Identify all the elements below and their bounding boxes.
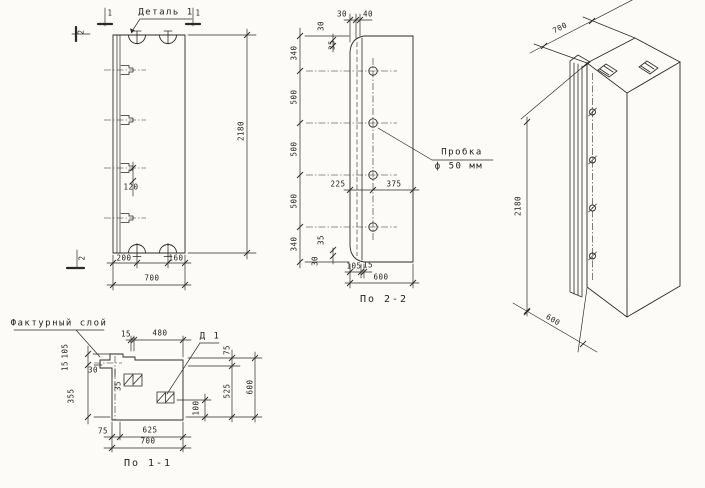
- dim-s22-mid-375: 375: [386, 180, 401, 188]
- dim-s22-rib-bot-30: 30: [311, 256, 319, 266]
- dim-s11-top-15: 15: [121, 330, 131, 338]
- embedded-part-label: Д 1: [200, 333, 221, 342]
- dim-s22-rib-bot-35: 35: [317, 235, 325, 245]
- dim-s11-right-600: 600: [246, 379, 254, 394]
- dim-s22-top-30: 30: [337, 10, 347, 18]
- dim-s11-left-30: 30: [88, 366, 98, 374]
- dim-s11-right-100: 100: [192, 400, 200, 415]
- dim-s11-right-75: 75: [223, 345, 231, 355]
- dim-s22-bot-105: 105: [346, 262, 361, 270]
- dim-s22-chain-500-1: 500: [290, 89, 298, 104]
- section-mark-2-top: 2: [77, 29, 85, 34]
- section-mark-2-bottom: 2: [78, 255, 86, 260]
- dim-front-width-700: 700: [144, 274, 159, 282]
- facture-layer-label: Фактурный слой: [11, 320, 108, 329]
- dim-front-loop-left-200: 200: [116, 254, 131, 262]
- dim-s22-chain-340-top: 340: [290, 45, 298, 60]
- dim-s11-left-355: 355: [67, 388, 75, 403]
- detail-callout-label: Деталь 1: [138, 9, 193, 18]
- linework: [0, 0, 705, 488]
- dim-s11-bot-75: 75: [98, 427, 108, 435]
- dim-front-loop-right-160: 160: [168, 254, 183, 262]
- section-mark-1-right: 1: [195, 9, 200, 17]
- dim-s22-top-40: 40: [363, 10, 373, 18]
- section-1-1-title: По 1-1: [124, 459, 172, 469]
- plug-note-line1: Пробка: [441, 149, 483, 158]
- dim-front-clip-120: 120: [123, 183, 138, 191]
- dim-s11-bot-700: 700: [140, 437, 155, 445]
- engineering-drawing-sheet: Деталь 1 1 1 2 2 120 2180 200 160 700 30…: [0, 0, 705, 488]
- dim-s11-bot-625: 625: [142, 426, 157, 434]
- dim-s22-depth-600: 600: [373, 273, 388, 281]
- dim-s11-right-525: 525: [223, 383, 231, 398]
- dim-s11-left-35: 35: [114, 381, 122, 391]
- dim-s22-chain-500-2: 500: [290, 141, 298, 156]
- section-2-2-title: По 2-2: [360, 295, 408, 305]
- dim-s22-bot-15: 15: [363, 261, 373, 269]
- dim-s11-left-15: 15: [61, 361, 69, 371]
- plug-note-line2: ф 50 мм: [435, 163, 483, 172]
- dim-s22-rib-top-30: 30: [317, 21, 325, 31]
- section-mark-1-left: 1: [107, 9, 112, 17]
- dim-s22-rib-top-35: 35: [328, 40, 336, 50]
- dim-front-height-2180: 2180: [237, 121, 245, 141]
- dim-s22-chain-340-bottom: 340: [290, 236, 298, 251]
- dim-s22-chain-500-3: 500: [290, 193, 298, 208]
- dim-s11-top-480: 480: [152, 329, 167, 337]
- dim-s22-mid-225: 225: [330, 180, 345, 188]
- dim-iso-height-2180: 2180: [514, 196, 522, 216]
- dim-s11-left-105: 105: [61, 343, 69, 358]
